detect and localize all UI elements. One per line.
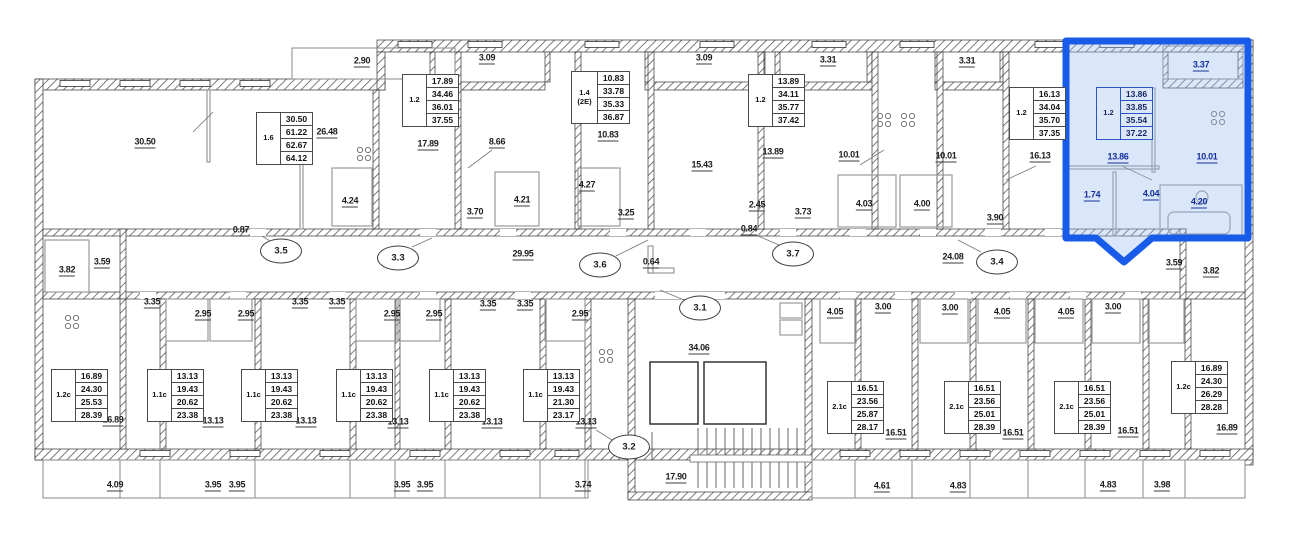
unit-info-table: 1.1c13.1319.4320.6223.38 — [429, 369, 486, 422]
area-label: 10.83 — [597, 131, 618, 142]
area-label: 34.06 — [688, 344, 709, 355]
unit-area-value: 35.33 — [598, 98, 629, 111]
area-label: 2.95 — [238, 310, 254, 321]
area-label: 16.13 — [1029, 152, 1050, 163]
unit-area-value: 37.55 — [427, 114, 458, 126]
unit-area-value: 13.13 — [266, 370, 297, 383]
unit-area-value: 23.56 — [852, 395, 883, 408]
unit-area-value: 35.77 — [773, 101, 804, 114]
unit-info-table: 2.1c16.5123.5625.0128.39 — [944, 381, 1001, 434]
area-label: 4.24 — [342, 197, 358, 208]
unit-area-value: 19.43 — [172, 383, 203, 396]
unit-type-label: 2.1c — [1055, 382, 1079, 433]
unit-area-value: 16.51 — [1079, 382, 1110, 395]
area-label: 3.95 — [229, 481, 245, 492]
unit-area-value: 35.70 — [1034, 114, 1065, 127]
area-label: 26.48 — [316, 128, 337, 139]
unit-area-value: 23.56 — [969, 395, 1000, 408]
unit-area-value: 19.43 — [548, 383, 579, 396]
unit-type-label: 1.1c — [148, 370, 172, 421]
area-label: 4.03 — [856, 200, 872, 211]
unit-area-value: 34.04 — [1034, 101, 1065, 114]
area-label: 4.27 — [579, 181, 595, 192]
unit-area-value: 24.30 — [1196, 375, 1227, 388]
unit-type-label: 1.6 — [257, 113, 281, 164]
unit-area-value: 26.29 — [1196, 388, 1227, 401]
area-label: 10.01 — [838, 151, 859, 162]
area-label: 2.95 — [195, 310, 211, 321]
unit-info-table: 1.2c16.8924.3025.5328.39 — [51, 369, 108, 422]
area-label: 13.89 — [762, 148, 783, 159]
unit-type-label: 1.1c — [430, 370, 454, 421]
unit-type-label: 1.2 — [749, 75, 773, 126]
unit-area-value: 28.17 — [852, 421, 883, 433]
unit-area-value: 30.50 — [281, 113, 312, 126]
unit-area-value: 28.28 — [1196, 401, 1227, 413]
unit-area-value: 23.38 — [454, 409, 485, 421]
area-label: 3.59 — [94, 258, 110, 269]
unit-area-value: 28.39 — [969, 421, 1000, 433]
area-label: 4.09 — [107, 481, 123, 492]
area-label: 16.51 — [885, 429, 906, 440]
unit-info-table: 2.1c16.5123.5625.8728.17 — [827, 381, 884, 434]
section-circle: 3.3 — [377, 246, 419, 271]
area-label: 16.89 — [1216, 424, 1237, 435]
unit-area-value: 37.35 — [1034, 127, 1065, 139]
unit-area-value: 23.38 — [266, 409, 297, 421]
area-label: 3.82 — [1203, 267, 1219, 278]
unit-type-label: 1.4 (2Е) — [572, 72, 598, 123]
area-label: 13.13 — [295, 417, 316, 428]
unit-area-value: 23.38 — [172, 409, 203, 421]
area-label: 4.00 — [914, 200, 930, 211]
unit-info-table: 1.1c13.1319.4320.6223.38 — [336, 369, 393, 422]
unit-area-value: 36.87 — [598, 111, 629, 123]
section-circle: 3.5 — [260, 239, 302, 264]
unit-info-table: 1.1c13.1319.4320.6223.38 — [147, 369, 204, 422]
unit-area-value: 19.43 — [361, 383, 392, 396]
area-label: 17.90 — [665, 473, 686, 484]
unit-area-value: 16.89 — [1196, 362, 1227, 375]
unit-area-value: 20.62 — [172, 396, 203, 409]
unit-area-value: 21.30 — [548, 396, 579, 409]
area-label: 3.00 — [942, 304, 958, 315]
area-label: 13.13 — [202, 417, 223, 428]
area-label: 4.21 — [514, 196, 530, 207]
area-label: 3.95 — [394, 481, 410, 492]
unit-area-value: 13.13 — [172, 370, 203, 383]
unit-area-value: 37.42 — [773, 114, 804, 126]
unit-area-value: 20.62 — [361, 396, 392, 409]
area-label: 17.89 — [417, 140, 438, 151]
area-label: 4.83 — [950, 482, 966, 493]
area-label: 2.95 — [426, 310, 442, 321]
unit-area-value: 16.13 — [1034, 88, 1065, 101]
area-label: 3.09 — [696, 54, 712, 65]
area-label: 3.00 — [1105, 303, 1121, 314]
selected-unit-hotspot[interactable] — [1063, 37, 1251, 239]
area-label: 4.83 — [1100, 481, 1116, 492]
unit-info-table: 1.630.5061.2262.6764.12 — [256, 112, 313, 165]
unit-type-label: 1.2c — [52, 370, 76, 421]
area-label: 3.82 — [59, 266, 75, 277]
area-label: 3.95 — [417, 481, 433, 492]
unit-info-table: 1.1c13.1319.4321.3023.17 — [523, 369, 580, 422]
unit-area-value: 64.12 — [281, 152, 312, 164]
area-label: 3.90 — [987, 214, 1003, 225]
unit-area-value: 28.39 — [76, 409, 107, 421]
unit-area-value: 23.38 — [361, 409, 392, 421]
area-label: 4.05 — [1058, 308, 1074, 319]
area-label: 3.25 — [618, 209, 634, 220]
unit-area-value: 25.87 — [852, 408, 883, 421]
unit-info-table: 1.213.8934.1135.7737.42 — [748, 74, 805, 127]
unit-type-label: 2.1c — [945, 382, 969, 433]
area-label: 16.51 — [1117, 427, 1138, 438]
section-circle: 3.6 — [579, 253, 621, 278]
area-label: 2.95 — [384, 310, 400, 321]
section-circle: 3.1 — [679, 296, 721, 321]
unit-info-table: 1.217.8934.4636.0137.55 — [402, 74, 459, 127]
area-label: 3.00 — [875, 303, 891, 314]
unit-info-table: 1.1c13.1319.4320.6223.38 — [241, 369, 298, 422]
unit-area-value: 36.01 — [427, 101, 458, 114]
unit-area-value: 10.83 — [598, 72, 629, 85]
unit-area-value: 17.89 — [427, 75, 458, 88]
area-label: 4.05 — [827, 308, 843, 319]
area-label: 10.01 — [935, 152, 956, 163]
unit-type-label: 1.2c — [1172, 362, 1196, 413]
area-label: 16.51 — [1002, 429, 1023, 440]
area-label: 3.35 — [292, 298, 308, 309]
unit-area-value: 34.11 — [773, 88, 804, 101]
unit-area-value: 13.13 — [548, 370, 579, 383]
unit-area-value: 13.13 — [454, 370, 485, 383]
unit-area-value: 33.78 — [598, 85, 629, 98]
unit-info-table: 1.2c16.8924.3026.2928.28 — [1171, 361, 1228, 414]
area-label: 15.43 — [691, 161, 712, 172]
area-label: 30.50 — [134, 138, 155, 149]
area-label: 3.70 — [467, 208, 483, 219]
area-label: 3.35 — [517, 300, 533, 311]
unit-area-value: 13.89 — [773, 75, 804, 88]
unit-type-label: 1.2 — [403, 75, 427, 126]
area-label: 2.90 — [354, 57, 370, 68]
unit-area-value: 25.01 — [969, 408, 1000, 421]
section-circle: 3.4 — [976, 250, 1018, 275]
area-label: 3.09 — [479, 54, 495, 65]
area-label: 0.64 — [643, 258, 659, 269]
unit-area-value: 16.51 — [852, 382, 883, 395]
section-circle: 3.2 — [608, 435, 650, 460]
unit-area-value: 62.67 — [281, 139, 312, 152]
unit-area-value: 19.43 — [454, 383, 485, 396]
area-label: 4.61 — [874, 482, 890, 493]
unit-type-label: 1.1c — [524, 370, 548, 421]
area-label: 3.35 — [480, 300, 496, 311]
area-label: 3.98 — [1154, 481, 1170, 492]
area-label: 3.59 — [1166, 259, 1182, 270]
unit-area-value: 19.43 — [266, 383, 297, 396]
unit-area-value: 20.62 — [266, 396, 297, 409]
unit-area-value: 23.56 — [1079, 395, 1110, 408]
unit-info-table: 1.216.1334.0435.7037.35 — [1009, 87, 1066, 140]
unit-info-table: 1.4 (2Е)10.8333.7835.3336.87 — [571, 71, 630, 124]
area-label: 0.87 — [233, 226, 249, 237]
floor-plan: 1.630.5061.2262.6764.121.217.8934.4636.0… — [0, 0, 1296, 538]
area-label: 2.45 — [749, 201, 765, 212]
unit-type-label: 1.1c — [242, 370, 266, 421]
area-label: 3.95 — [205, 481, 221, 492]
area-label: 3.31 — [959, 57, 975, 68]
area-label: 3.35 — [144, 298, 160, 309]
unit-info-table: 2.1c16.5123.5625.0128.39 — [1054, 381, 1111, 434]
unit-area-value: 13.13 — [361, 370, 392, 383]
unit-area-value: 16.89 — [76, 370, 107, 383]
unit-area-value: 16.51 — [969, 382, 1000, 395]
area-label: 3.73 — [795, 208, 811, 219]
section-circle: 3.7 — [772, 242, 814, 267]
unit-type-label: 1.1c — [337, 370, 361, 421]
unit-area-value: 23.17 — [548, 409, 579, 421]
area-label: 4.05 — [994, 308, 1010, 319]
area-label: 3.74 — [575, 481, 591, 492]
unit-area-value: 28.39 — [1079, 421, 1110, 433]
area-label: 24.08 — [942, 253, 963, 264]
unit-area-value: 25.53 — [76, 396, 107, 409]
area-label: 0.84 — [741, 225, 757, 236]
area-label: 3.31 — [820, 56, 836, 67]
area-label: 3.35 — [329, 298, 345, 309]
unit-area-value: 24.30 — [76, 383, 107, 396]
area-label: 2.95 — [572, 310, 588, 321]
unit-area-value: 20.62 — [454, 396, 485, 409]
unit-area-value: 25.01 — [1079, 408, 1110, 421]
area-label: 8.66 — [489, 138, 505, 149]
area-label: 29.95 — [512, 250, 533, 261]
unit-area-value: 61.22 — [281, 126, 312, 139]
unit-type-label: 1.2 — [1010, 88, 1034, 139]
unit-type-label: 2.1c — [828, 382, 852, 433]
unit-area-value: 34.46 — [427, 88, 458, 101]
